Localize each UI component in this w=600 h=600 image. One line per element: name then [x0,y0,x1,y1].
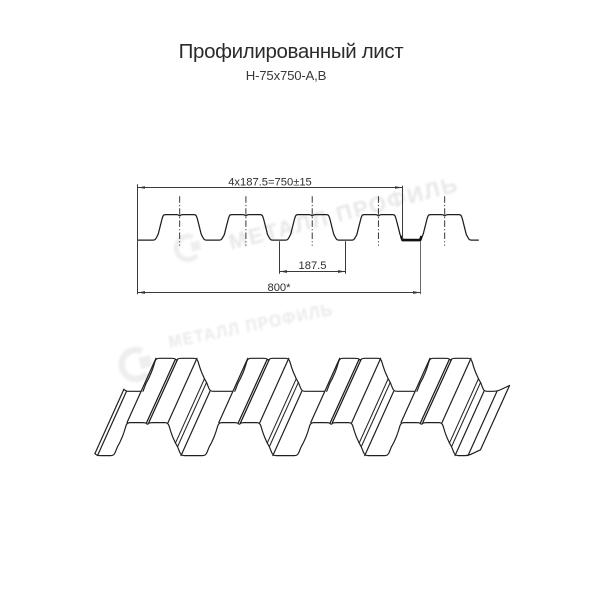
svg-text:800*: 800* [267,282,291,294]
svg-text:187.5: 187.5 [299,260,327,272]
svg-text:4x187.5=750±15: 4x187.5=750±15 [228,176,312,188]
svg-text:МЕТАЛЛ ПРОФИЛЬ: МЕТАЛЛ ПРОФИЛЬ [167,300,335,352]
